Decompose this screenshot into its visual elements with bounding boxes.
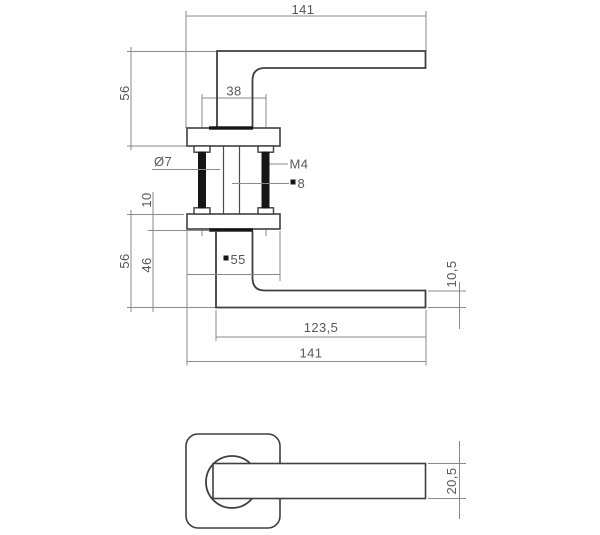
dim-screw-spacing: 38 [202,84,266,237]
technical-drawing-canvas: 141 56 38 Ø7 [0,0,600,535]
square-section-symbol-icon [291,180,296,185]
top-view: 141 56 38 [117,2,426,236]
bolt-left-shaft [198,152,206,209]
lower-rosette-side [187,214,280,229]
dim-label-46: 46 [139,257,154,272]
bolt-right-shaft [262,152,270,209]
bolt-right-top-nut [258,146,274,152]
lever-side-outline [216,231,426,308]
dim-label-55: 55 [231,252,246,267]
label-thread: M4 [270,157,309,172]
upper-neck-joint [209,126,253,129]
front-view: 20,5 [186,434,466,528]
dim-top-total-length: 141 [186,2,426,128]
bolt-right-bottom-nut [258,208,274,214]
dim-label-m4: M4 [290,157,309,172]
bolt-left-top-nut [194,146,210,152]
dim-label-o7: Ø7 [154,154,172,169]
upper-rosette-side [187,128,280,146]
dim-label-10-5: 10,5 [444,261,459,288]
dim-label-top-56: 56 [117,85,132,100]
dim-label-38: 38 [226,84,241,99]
dim-label-123-5: 123,5 [304,320,339,335]
lever-top-outline [217,51,426,128]
dim-rosette-square: 55 [187,231,280,366]
square-rosette-symbol-icon [224,256,229,261]
cross-section: Ø7 M4 8 [152,146,308,232]
dim-label-20-5: 20,5 [444,468,459,495]
side-view: 10 56 46 55 123,5 141 10,5 [117,192,466,366]
dim-lever-thickness: 10,5 [428,261,466,329]
dim-label-top-141: 141 [292,2,315,17]
lever-front [213,464,426,499]
drawing-svg: 141 56 38 Ø7 [0,0,600,535]
dim-label-10: 10 [139,192,154,207]
bolt-left-bottom-nut [194,208,210,214]
dim-bottom-total-length: 141 [187,346,426,362]
dim-label-8: 8 [298,176,306,191]
dim-lever-width: 20,5 [428,441,466,519]
dim-label-bottom-141: 141 [300,346,323,361]
label-screw-diameter: Ø7 [152,154,220,170]
dim-label-side-56: 56 [117,253,132,268]
